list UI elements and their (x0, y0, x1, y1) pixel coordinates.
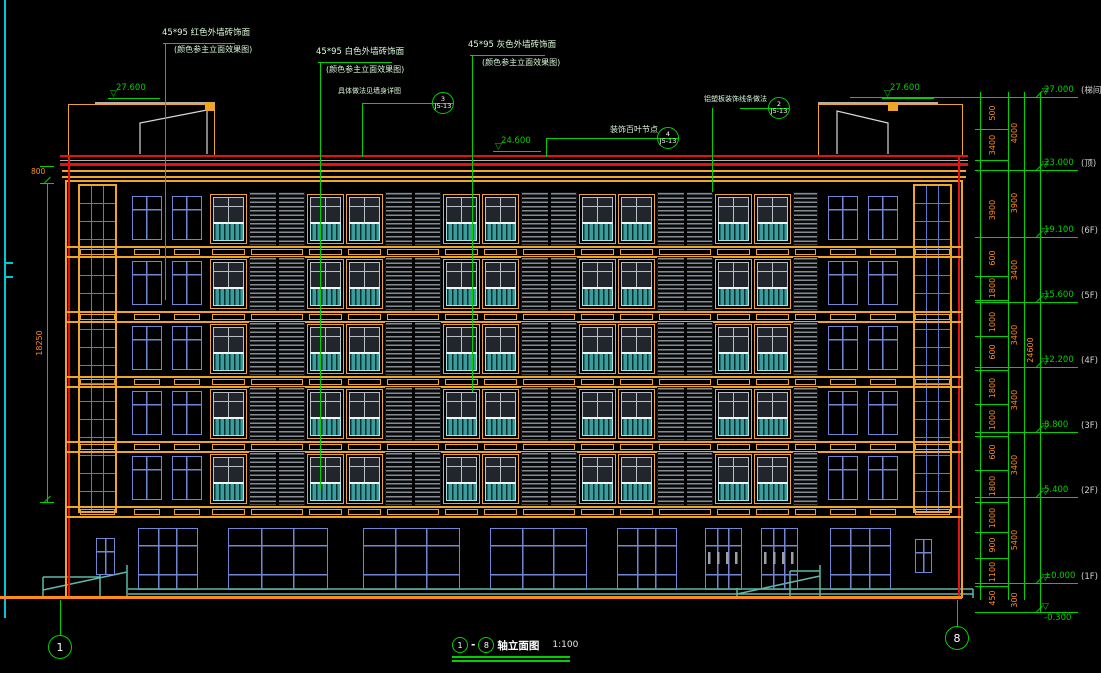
band-segment (309, 379, 342, 385)
wing-window (132, 261, 162, 305)
band-segment (523, 314, 575, 320)
wing-window (868, 391, 898, 435)
facade-window (346, 194, 383, 244)
window-glazing (310, 392, 341, 420)
balcony-railing (485, 222, 516, 241)
elevation-triangle-icon: ▽ (1042, 293, 1049, 302)
band-segment (134, 379, 160, 385)
wall-stripe-panel (793, 257, 818, 311)
wing-window (172, 391, 202, 435)
facade-window (579, 259, 616, 309)
band-segment (870, 249, 896, 255)
balcony-railing (757, 352, 788, 371)
band-segment (251, 314, 303, 320)
stripe-divider (276, 387, 279, 441)
annotation-red-tile: 45*95 红色外墙砖饰面 (162, 29, 250, 38)
elevation-triangle-icon: ▽ (1042, 488, 1049, 497)
band-segment (870, 314, 896, 320)
stripe-divider (684, 257, 687, 311)
drawing-title: 1 - 8 轴立面图 1:100 (452, 637, 578, 653)
band-segment (795, 314, 816, 320)
floor-band-line (65, 441, 963, 443)
dimension-line (47, 183, 48, 502)
elevation-drawing-canvas: 45*95 红色外墙砖饰面 (颜色参主立面效果图) 45*95 白色外墙砖饰面 … (0, 0, 1101, 673)
facade-window (579, 324, 616, 374)
facade-window (443, 259, 480, 309)
floor-band-line (65, 246, 963, 248)
band-segment (212, 249, 245, 255)
title-axis-end-bubble: 8 (478, 637, 494, 653)
window-glazing (213, 327, 244, 355)
balcony-railing (582, 287, 613, 306)
band-segment (756, 509, 789, 515)
wall-stripe-panel (793, 387, 818, 441)
facade-window (715, 454, 752, 504)
cornice-line-yellow (62, 170, 966, 172)
floor-label: (梯间顶) (1081, 87, 1101, 96)
balcony-railing (621, 222, 652, 241)
axis-stem (957, 600, 958, 627)
band-segment (80, 379, 115, 385)
ground-line (0, 596, 962, 599)
band-segment (620, 379, 653, 385)
frame-tick (5, 262, 13, 264)
facade-window (307, 389, 344, 439)
band-segment (620, 314, 653, 320)
band-segment (756, 314, 789, 320)
band-segment (830, 444, 856, 450)
dim-value: 3900 (1011, 183, 1021, 223)
extension-line (975, 237, 1040, 238)
storefront-window (617, 528, 677, 590)
band-segment (756, 379, 789, 385)
window-glazing (310, 262, 341, 290)
storefront-window (228, 528, 328, 590)
balcony-railing (349, 352, 380, 371)
dimension-line (1024, 92, 1025, 600)
facade-window (482, 454, 519, 504)
wall-stripe-panel (793, 192, 818, 246)
facade-window (482, 324, 519, 374)
leader-line (163, 43, 235, 44)
facade-window (307, 194, 344, 244)
window-glazing (213, 197, 244, 225)
balcony-railing (213, 482, 244, 501)
band-segment (659, 444, 711, 450)
balcony-railing (485, 287, 516, 306)
window-glazing (757, 457, 788, 485)
band-segment (830, 509, 856, 515)
band-segment (484, 379, 517, 385)
elevation-value: -0.300 (1044, 614, 1071, 623)
elevation-line (493, 151, 541, 152)
facade-window (618, 194, 655, 244)
facade-window (210, 194, 247, 244)
floor-band-line (65, 376, 963, 378)
elevation-triangle-icon: ▽ (1042, 88, 1049, 97)
floor-band-line (65, 256, 963, 258)
facade-window (715, 389, 752, 439)
window-glazing (310, 197, 341, 225)
band-segment (795, 509, 816, 515)
stripe-divider (412, 322, 415, 376)
band-segment (620, 509, 653, 515)
axis-bubble-1: 1 (48, 635, 72, 659)
band-segment (523, 379, 575, 385)
balcony-railing (349, 222, 380, 241)
leader-line (546, 138, 547, 157)
stripe-divider (684, 452, 687, 506)
detail-ref: J5-13 (435, 103, 452, 110)
band-segment (212, 444, 245, 450)
leader-line (712, 108, 713, 192)
window-glazing (582, 392, 613, 420)
leader-line (740, 108, 770, 109)
band-segment (387, 379, 439, 385)
dim-value: 3900 (989, 190, 999, 230)
facade-window (715, 259, 752, 309)
wing-window (132, 196, 162, 240)
band-segment (484, 249, 517, 255)
facade-window (618, 389, 655, 439)
dim-value: 3400 (1011, 445, 1021, 485)
stripe-divider (412, 192, 415, 246)
wing-window (828, 391, 858, 435)
storefront-window (830, 528, 891, 590)
balcony-railing (718, 417, 749, 436)
cornice-line-gray (60, 160, 968, 161)
facade-window (579, 194, 616, 244)
elevation-triangle-icon: ▽ (1042, 423, 1049, 432)
band-segment (915, 444, 950, 450)
band-segment (523, 444, 575, 450)
window-glazing (621, 327, 652, 355)
elevation-left-parapet: 27.600 (116, 84, 146, 93)
elevation-line (1040, 170, 1078, 171)
window-glazing (582, 262, 613, 290)
balcony-railing (757, 287, 788, 306)
dim-value: 600 (989, 332, 999, 372)
band-segment (445, 314, 478, 320)
band-segment (717, 379, 750, 385)
facade-window (443, 194, 480, 244)
dim-value: 3400 (1011, 380, 1021, 420)
window-glazing (213, 457, 244, 485)
dimension-line (1008, 92, 1009, 600)
wing-window (172, 261, 202, 305)
storefront-window (490, 528, 587, 590)
detail-bubble: 2J5-13 (768, 97, 790, 119)
band-segment (445, 509, 478, 515)
balcony-railing (757, 222, 788, 241)
wing-window (132, 456, 162, 500)
dim-value: 3400 (1011, 315, 1021, 355)
extension-line (975, 497, 1040, 498)
elevation-line (1040, 497, 1078, 498)
band-segment (251, 379, 303, 385)
band-segment (387, 509, 439, 515)
annotation-gray-tile: 45*95 灰色外墙砖饰面 (468, 41, 556, 50)
band-segment (80, 314, 115, 320)
wing-window (828, 261, 858, 305)
window-glazing (718, 392, 749, 420)
elevation-line (1040, 97, 1078, 98)
wing-window (868, 456, 898, 500)
bulkhead-step (205, 102, 214, 111)
facade-window (482, 194, 519, 244)
band-segment (717, 314, 750, 320)
balcony-railing (485, 417, 516, 436)
balcony-railing (310, 287, 341, 306)
storefront-window (138, 528, 198, 590)
band-segment (915, 509, 950, 515)
axis-stem (60, 600, 61, 636)
extension-line (975, 170, 1040, 171)
window-glazing (349, 457, 380, 485)
balcony-railing (485, 482, 516, 501)
floor-band-line (65, 506, 963, 508)
band-segment (484, 314, 517, 320)
leader-line (470, 55, 545, 56)
parapet-top-line (65, 180, 963, 182)
annotation-white-tile: 45*95 白色外墙砖饰面 (316, 48, 404, 57)
band-segment (251, 444, 303, 450)
storefront-window (915, 539, 932, 573)
wall-stripe-panel (793, 322, 818, 376)
band-segment (387, 444, 439, 450)
balcony-railing (621, 482, 652, 501)
elevation-line (108, 98, 160, 99)
stair-curtainwall-left (78, 184, 117, 513)
dim-value: 300 (1011, 580, 1021, 620)
band-segment (445, 249, 478, 255)
elevation-line (1040, 583, 1078, 584)
elevation-mid-parapet: 24.600 (501, 137, 531, 146)
stripe-divider (548, 452, 551, 506)
facade-window (307, 324, 344, 374)
balcony-railing (310, 417, 341, 436)
band-segment (445, 444, 478, 450)
wing-window (172, 196, 202, 240)
floor-label: (6F) (1081, 227, 1098, 236)
leader-line (362, 103, 432, 104)
band-segment (581, 379, 614, 385)
annotation-color-note: (颜色参主立面效果图) (482, 59, 560, 67)
band-segment (756, 444, 789, 450)
band-segment (309, 314, 342, 320)
band-segment (484, 444, 517, 450)
window-glazing (718, 327, 749, 355)
extension-line (975, 612, 1040, 613)
facade-window (443, 324, 480, 374)
stripe-divider (548, 387, 551, 441)
balcony-railing (621, 352, 652, 371)
floor-band-line (65, 386, 963, 388)
stair-curtainwall-right (913, 184, 952, 513)
annotation-alum: 铝塑板装饰线条做法 (704, 96, 767, 103)
facade-window (579, 389, 616, 439)
band-segment (309, 509, 342, 515)
window-glazing (718, 262, 749, 290)
frame-edge-line (4, 0, 6, 618)
facade-window (443, 454, 480, 504)
band-segment (174, 444, 200, 450)
stripe-divider (684, 192, 687, 246)
window-glazing (621, 392, 652, 420)
band-segment (80, 444, 115, 450)
band-segment (251, 249, 303, 255)
band-segment (134, 314, 160, 320)
detail-bubble: 4J5-13 (657, 127, 679, 149)
wing-window (828, 196, 858, 240)
window-glazing (349, 197, 380, 225)
band-segment (212, 314, 245, 320)
elevation-line (1040, 237, 1078, 238)
dim-left-top: 800 (31, 168, 45, 176)
roof-bulkhead-left (68, 104, 215, 156)
elevation-triangle-icon: ▽ (1042, 603, 1049, 612)
window-glazing (310, 457, 341, 485)
band-segment (523, 509, 575, 515)
title-underline (452, 656, 570, 658)
facade-window (482, 259, 519, 309)
window-glazing (213, 392, 244, 420)
window-glazing (718, 197, 749, 225)
facade-window (346, 454, 383, 504)
elevation-line (1040, 367, 1078, 368)
facade-window (754, 454, 791, 504)
extension-line (975, 583, 1040, 584)
title-dash: - (471, 639, 475, 651)
band-segment (174, 379, 200, 385)
window-glazing (310, 327, 341, 355)
floor-label: (4F) (1081, 357, 1098, 366)
facade-window (754, 324, 791, 374)
leader-line (320, 63, 321, 490)
balcony-railing (718, 287, 749, 306)
band-segment (581, 249, 614, 255)
wing-window (868, 261, 898, 305)
band-segment (174, 249, 200, 255)
extension-line (975, 302, 1040, 303)
band-segment (348, 509, 381, 515)
band-segment (212, 509, 245, 515)
band-segment (830, 314, 856, 320)
window-glazing (582, 197, 613, 225)
detail-ref: J5-13 (771, 108, 788, 115)
title-underline (452, 660, 570, 662)
facade-window (618, 259, 655, 309)
facade-window (210, 324, 247, 374)
balcony-railing (757, 417, 788, 436)
plinth-band-line (65, 516, 963, 518)
band-segment (387, 314, 439, 320)
band-segment (915, 249, 950, 255)
band-segment (830, 379, 856, 385)
facade-window (754, 389, 791, 439)
band-segment (348, 314, 381, 320)
dimension-line (980, 92, 981, 600)
dim-left-total: 18250 (36, 323, 46, 363)
balcony-railing (718, 352, 749, 371)
floor-label: (5F) (1081, 292, 1098, 301)
band-segment (134, 509, 160, 515)
stripe-divider (548, 322, 551, 376)
balcony-railing (582, 222, 613, 241)
window-glazing (582, 327, 613, 355)
band-segment (134, 249, 160, 255)
dim-value: 4000 (1011, 113, 1021, 153)
wing-window (172, 326, 202, 370)
band-segment (80, 249, 115, 255)
band-segment (174, 314, 200, 320)
band-segment (870, 444, 896, 450)
band-segment (212, 379, 245, 385)
elevation-triangle-icon: ▽ (1042, 574, 1049, 583)
band-segment (80, 509, 115, 515)
band-segment (795, 379, 816, 385)
axis-bubble-8: 8 (945, 626, 969, 650)
leader-line (318, 62, 392, 63)
window-glazing (757, 262, 788, 290)
floor-label: (顶) (1081, 160, 1096, 169)
facade-window (346, 389, 383, 439)
window-glazing (757, 327, 788, 355)
window-glazing (485, 262, 516, 290)
window-glazing (213, 262, 244, 290)
wing-window (868, 326, 898, 370)
window-glazing (582, 457, 613, 485)
window-glazing (621, 457, 652, 485)
facade-window (618, 324, 655, 374)
elevation-triangle-icon: ▽ (1042, 161, 1049, 170)
wall-stripe-panel (793, 452, 818, 506)
storefront-window (761, 528, 798, 590)
balcony-railing (349, 482, 380, 501)
facade-window (618, 454, 655, 504)
balcony-railing (213, 417, 244, 436)
stripe-divider (412, 387, 415, 441)
title-axis-start-bubble: 1 (452, 637, 468, 653)
balcony-railing (582, 417, 613, 436)
stripe-divider (412, 257, 415, 311)
dim-value: 3400 (1011, 250, 1021, 290)
band-segment (348, 444, 381, 450)
facade-window (715, 324, 752, 374)
facade-edge-right (961, 180, 963, 598)
window-glazing (621, 197, 652, 225)
balcony-railing (213, 287, 244, 306)
band-segment (387, 249, 439, 255)
band-segment (870, 509, 896, 515)
balcony-railing (310, 222, 341, 241)
facade-window (754, 194, 791, 244)
window-glazing (349, 327, 380, 355)
band-segment (915, 314, 950, 320)
wing-window (868, 196, 898, 240)
wing-window (132, 391, 162, 435)
band-segment (445, 379, 478, 385)
wing-window (132, 326, 162, 370)
band-segment (795, 444, 816, 450)
leader-line (546, 138, 658, 139)
leader-line (472, 56, 473, 392)
band-segment (484, 509, 517, 515)
facade-window (210, 454, 247, 504)
band-segment (795, 249, 816, 255)
facade-window (307, 259, 344, 309)
floor-label: (1F) (1081, 573, 1098, 582)
